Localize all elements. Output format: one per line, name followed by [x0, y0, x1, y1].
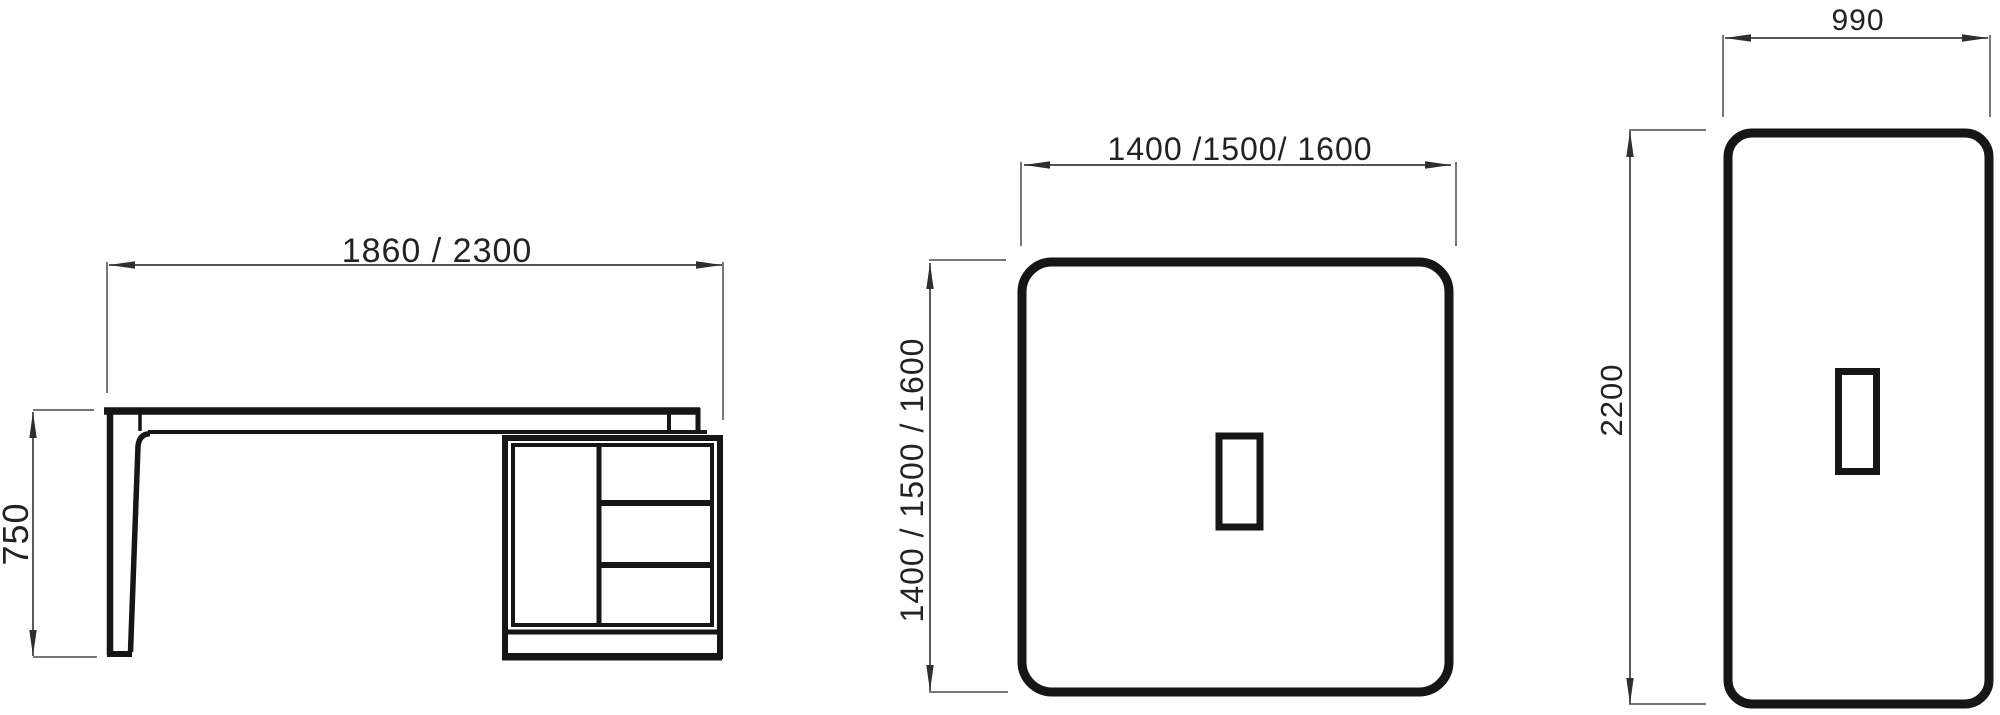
arrowhead-left: [109, 261, 135, 268]
rect-depth-label: 2200: [1594, 364, 1629, 437]
rect-top-cutout: [1839, 372, 1877, 472]
arrowhead-right: [1425, 161, 1451, 168]
desk-leg-inner-edge: [131, 434, 151, 652]
dimension-square-depth: 1400 / 1500 / 1600: [894, 260, 1008, 692]
square-top-panel: [1022, 262, 1449, 692]
view-rect-top-plan: 990 2200: [1594, 4, 1990, 704]
square-width-label: 1400 /1500/ 1600: [1107, 131, 1372, 167]
technical-drawing-canvas: 1860 / 2300 750 1400 /1500/ 1600: [0, 0, 2000, 715]
dimension-square-width: 1400 /1500/ 1600: [1021, 131, 1456, 246]
desk-outline: [104, 408, 722, 657]
desk-height-label: 750: [0, 502, 36, 565]
arrowhead-bottom: [1626, 678, 1633, 704]
rect-top-outline: [1728, 133, 1989, 704]
arrowhead-right: [1962, 34, 1988, 41]
arrowhead-left: [1024, 161, 1050, 168]
dimension-rect-depth: 2200: [1594, 130, 1706, 704]
view-desk-side-elevation: 1860 / 2300 750: [0, 232, 723, 657]
square-top-outline: [1022, 262, 1449, 692]
arrowhead-top: [29, 412, 36, 438]
arrowhead-bottom: [29, 630, 36, 656]
arrowhead-right: [696, 261, 722, 268]
arrowhead-left: [1725, 34, 1751, 41]
rect-top-panel: [1728, 133, 1989, 704]
arrowhead-top: [926, 263, 933, 289]
dimension-rect-width: 990: [1723, 4, 1990, 117]
arrowhead-bottom: [926, 665, 933, 691]
square-depth-label: 1400 / 1500 / 1600: [894, 338, 930, 623]
square-top-cutout: [1219, 436, 1260, 527]
arrowhead-top: [1626, 131, 1633, 157]
dimension-desk-height: 750: [0, 410, 97, 657]
view-square-top-plan: 1400 /1500/ 1600 1400 / 1500 / 1600: [894, 131, 1456, 692]
technical-drawing-sheet: 1860 / 2300 750 1400 /1500/ 1600: [0, 0, 2000, 715]
cabinet-front-inset: [513, 445, 712, 625]
rect-width-label: 990: [1831, 4, 1884, 37]
dimension-desk-width: 1860 / 2300: [107, 232, 723, 420]
